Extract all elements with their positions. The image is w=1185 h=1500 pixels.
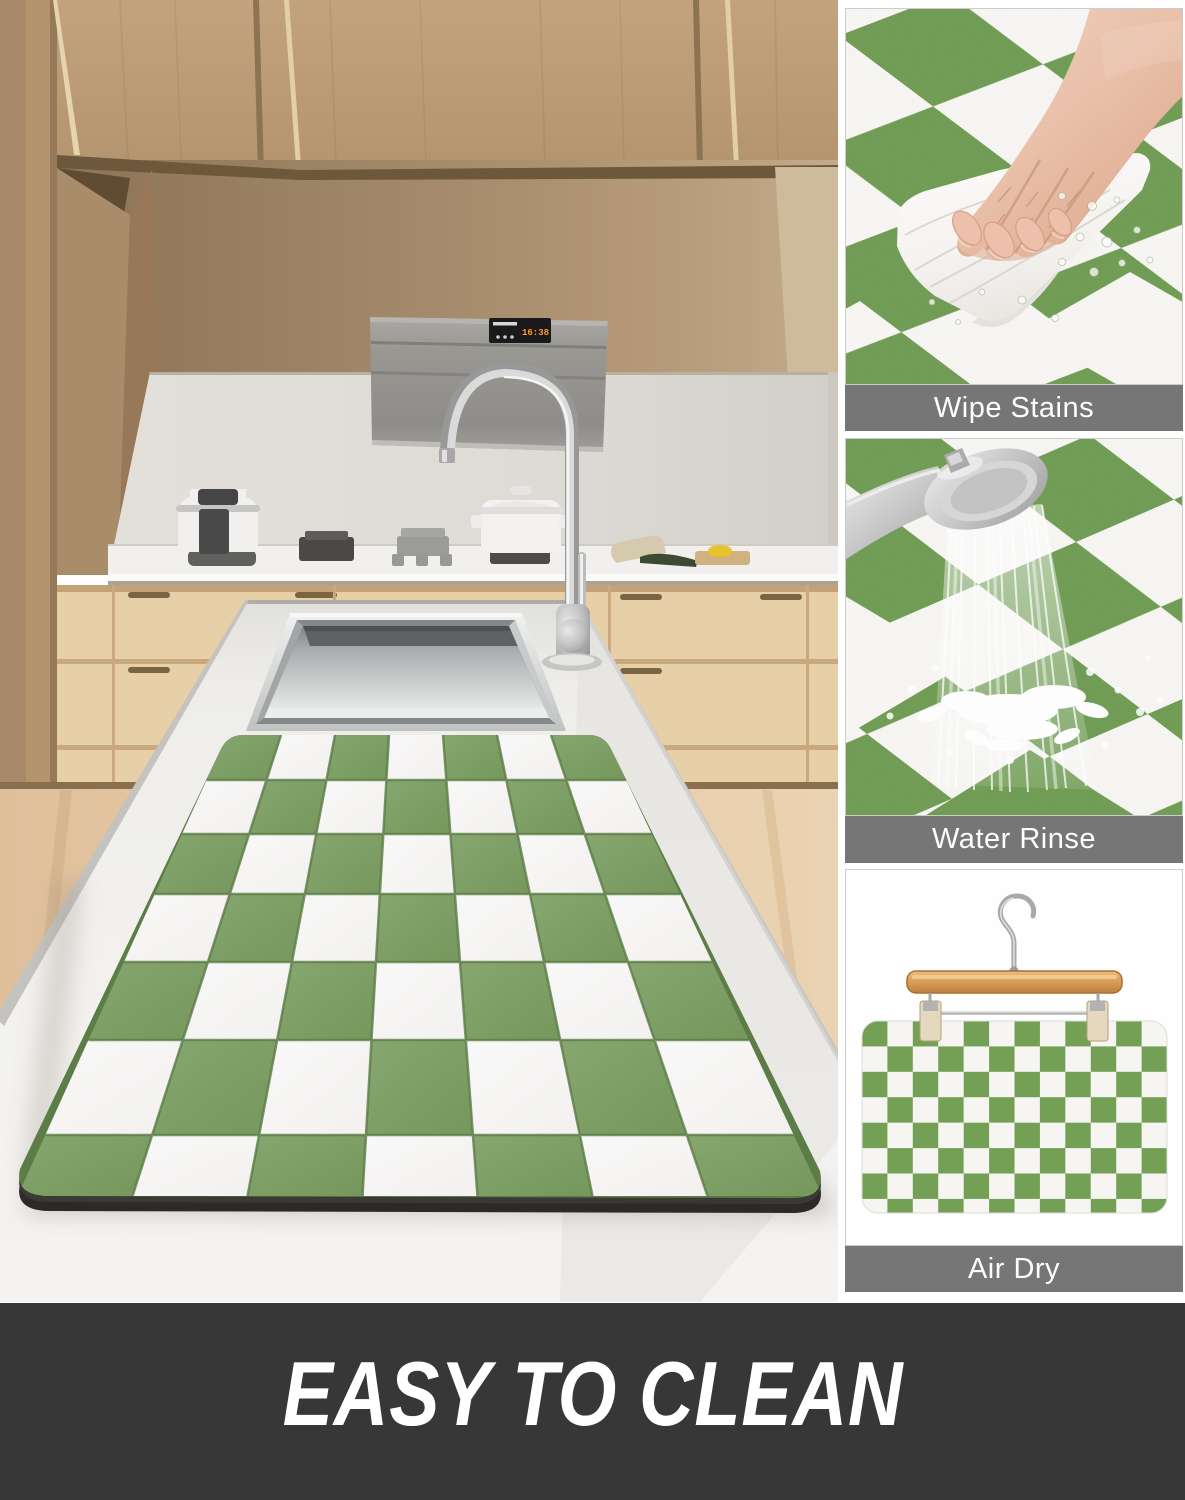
svg-text:16:38: 16:38: [522, 328, 549, 338]
